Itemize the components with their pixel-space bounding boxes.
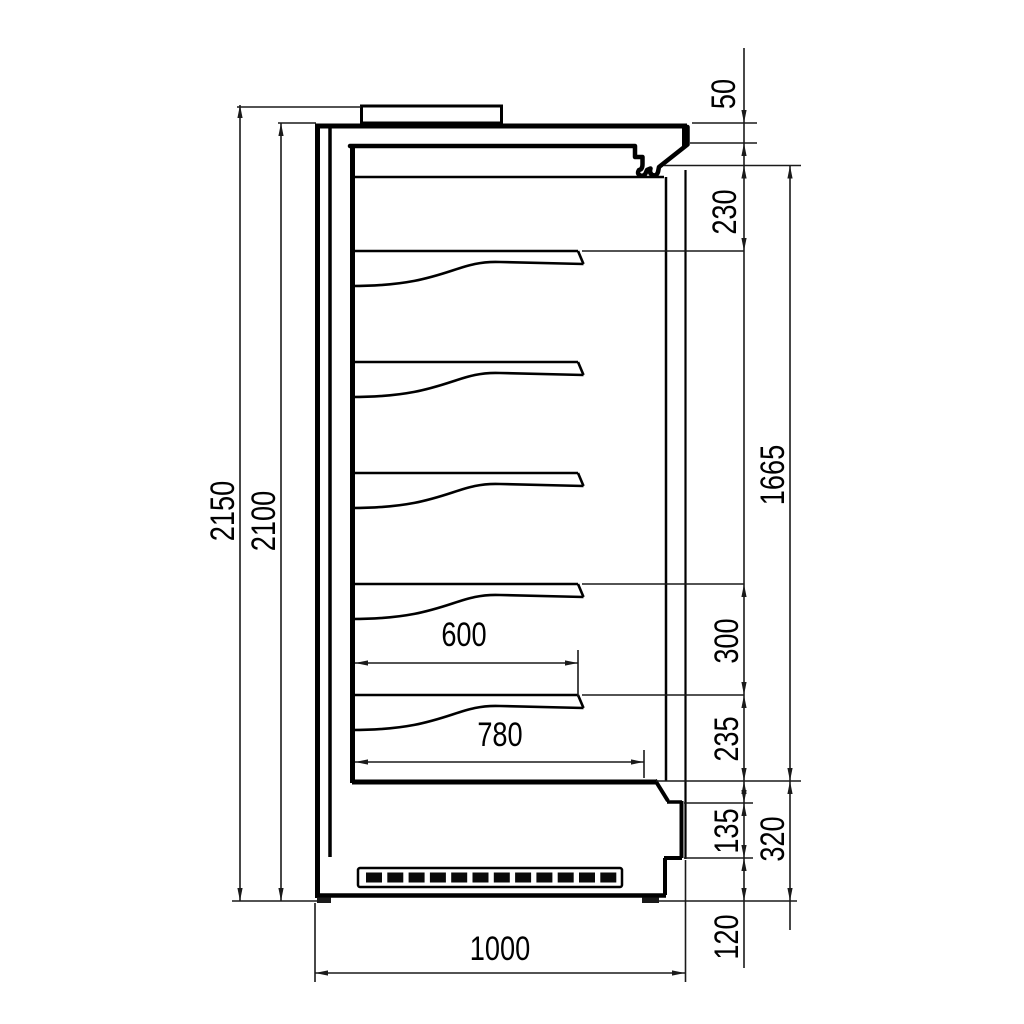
dim-overall-height: 2150 <box>203 481 242 541</box>
shelf <box>352 251 584 286</box>
dim-shelf-spacing: 300 <box>707 618 746 663</box>
foot-left <box>317 898 331 904</box>
technical-drawing: 2150 2100 50 230 1665 300 235 135 320 12… <box>0 0 1024 1024</box>
dim-deck-depth: 780 <box>477 715 522 754</box>
shelf <box>352 584 584 619</box>
dim-canopy-to-top-shelf: 230 <box>705 189 744 234</box>
dim-canopy-lip: 50 <box>704 79 743 109</box>
shelf <box>352 473 584 508</box>
dim-height-without-feet: 2100 <box>244 491 283 551</box>
dim-shelf-depth: 600 <box>441 615 486 654</box>
dim-bottom-shelf-to-deck: 235 <box>707 716 746 761</box>
canopy-profile <box>350 127 688 176</box>
dimension-labels: 2150 2100 50 230 1665 300 235 135 320 12… <box>203 79 792 968</box>
cabinet-outline <box>315 106 688 903</box>
shelves <box>352 251 584 730</box>
drawing-canvas: 2150 2100 50 230 1665 300 235 135 320 12… <box>0 0 1024 1024</box>
roof-box <box>362 106 502 123</box>
shelf <box>352 695 584 730</box>
dim-base-height: 320 <box>753 816 792 861</box>
vent-grille-slots <box>366 873 616 883</box>
deck-front-slant <box>655 780 668 801</box>
dim-plinth-height: 120 <box>707 914 746 959</box>
dim-interior-height: 1665 <box>753 445 792 505</box>
shelf <box>352 362 584 397</box>
dim-front-panel-height: 135 <box>707 808 746 853</box>
dim-overall-depth: 1000 <box>470 929 530 968</box>
